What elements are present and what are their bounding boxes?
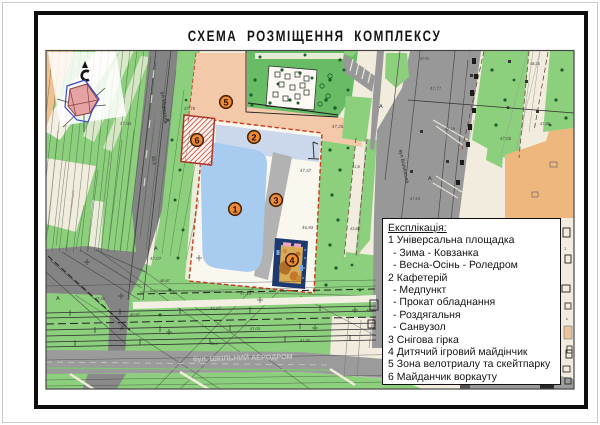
- svg-text:47,77: 47,77: [430, 86, 442, 91]
- svg-text:41,8: 41,8: [352, 164, 361, 169]
- svg-text:46,87: 46,87: [210, 306, 222, 311]
- svg-text:А: А: [428, 176, 432, 182]
- svg-text:47,03: 47,03: [250, 326, 261, 331]
- svg-text:46,4: 46,4: [210, 341, 219, 346]
- svg-text:47,07: 47,07: [150, 256, 162, 261]
- svg-text:с: с: [566, 316, 568, 321]
- svg-text:3: 3: [273, 196, 278, 206]
- svg-text:47,53: 47,53: [120, 121, 132, 126]
- svg-text:46,93: 46,93: [302, 225, 314, 230]
- svg-text:47,25: 47,25: [332, 124, 344, 129]
- svg-text:40,97: 40,97: [130, 312, 141, 317]
- svg-text:46,87: 46,87: [160, 278, 171, 283]
- svg-text:43,82: 43,82: [350, 226, 361, 231]
- svg-text:47,40: 47,40: [95, 296, 106, 301]
- svg-text:4: 4: [289, 256, 294, 266]
- svg-text:47,37: 47,37: [300, 168, 312, 173]
- svg-text:А: А: [56, 296, 60, 302]
- svg-text:5: 5: [223, 98, 228, 108]
- svg-text:47,15: 47,15: [445, 126, 456, 131]
- svg-text:47,23: 47,23: [410, 196, 421, 201]
- svg-text:6: 6: [194, 136, 199, 146]
- svg-text:А: А: [379, 104, 383, 110]
- svg-text:1: 1: [232, 205, 237, 215]
- svg-text:А: А: [120, 326, 124, 332]
- svg-text:4770: 4770: [420, 56, 430, 61]
- svg-text:А: А: [154, 246, 158, 252]
- svg-text:41,25: 41,25: [300, 338, 311, 343]
- svg-text:47,18: 47,18: [240, 291, 252, 296]
- svg-text:38,3: 38,3: [151, 156, 157, 166]
- svg-text:47,85: 47,85: [500, 136, 512, 141]
- svg-text:47,85: 47,85: [540, 121, 551, 126]
- svg-text:2: 2: [251, 133, 256, 143]
- svg-text:46,6: 46,6: [366, 308, 375, 313]
